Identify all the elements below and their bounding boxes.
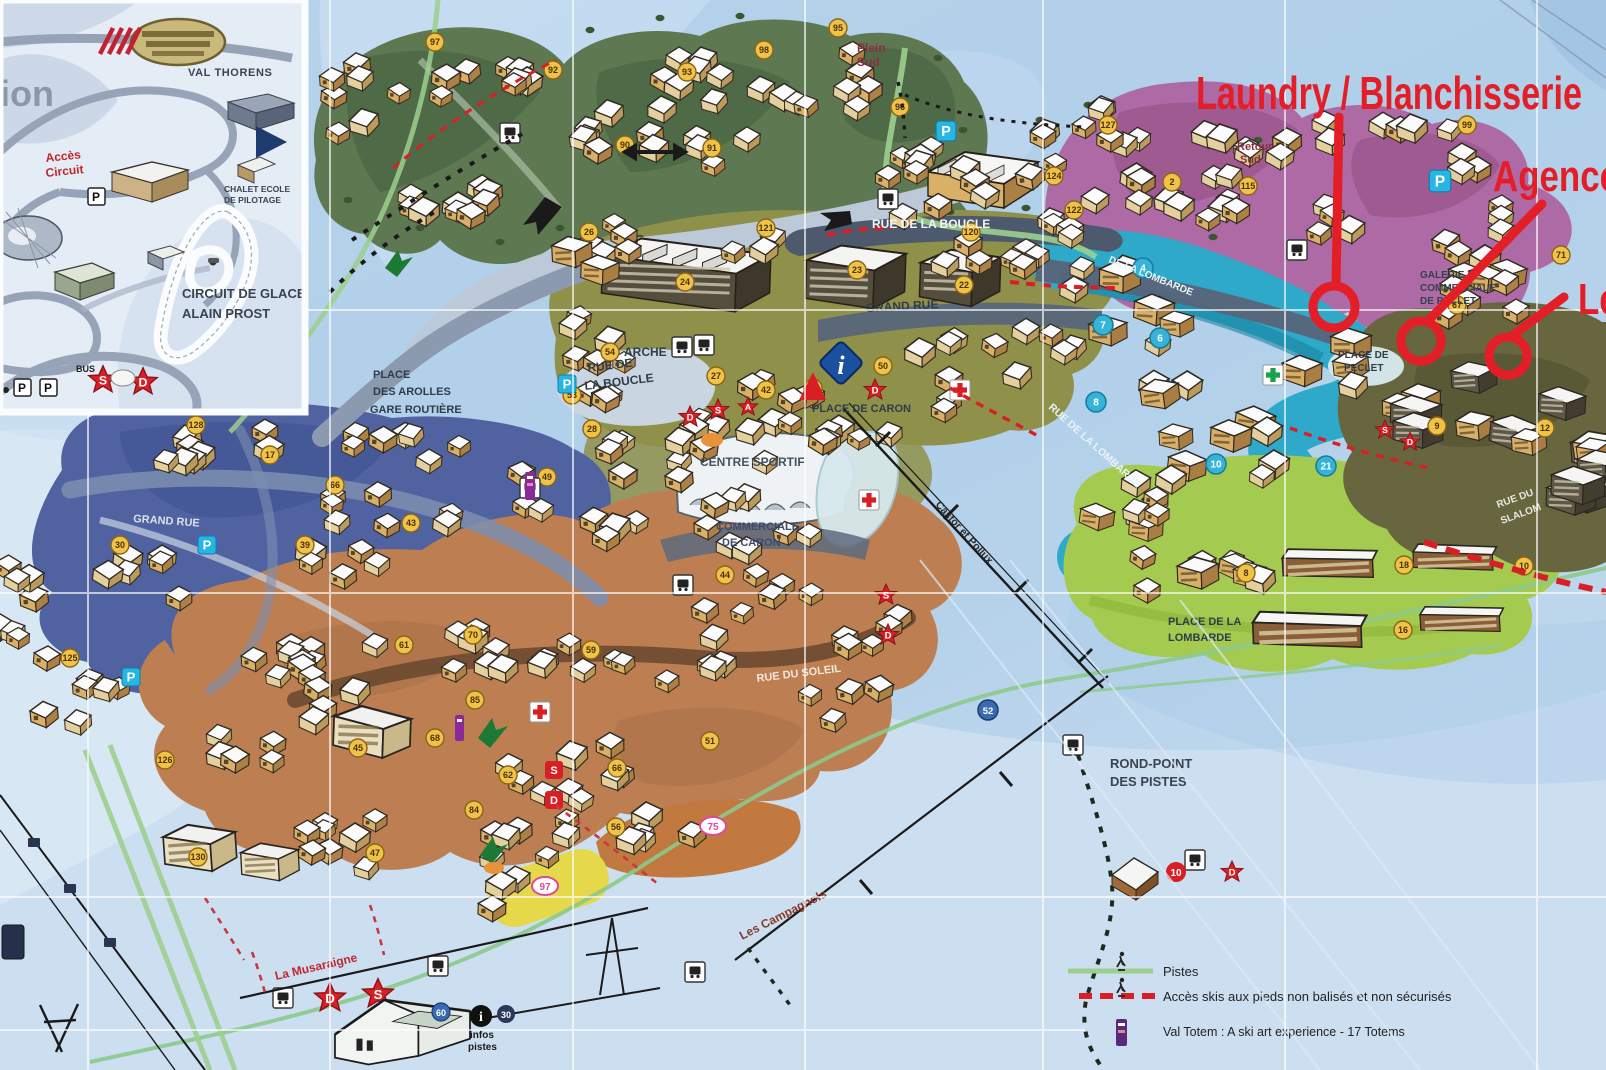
svg-text:D: D bbox=[687, 413, 694, 424]
svg-text:S: S bbox=[550, 765, 557, 777]
svg-text:CIRCUIT DE GLACE: CIRCUIT DE GLACE bbox=[182, 286, 306, 301]
svg-text:61: 61 bbox=[399, 640, 409, 650]
svg-text:52: 52 bbox=[983, 706, 994, 717]
svg-text:DE PILOTAGE: DE PILOTAGE bbox=[224, 195, 281, 205]
svg-text:126: 126 bbox=[157, 755, 172, 765]
svg-text:17: 17 bbox=[265, 450, 275, 460]
svg-text:85: 85 bbox=[470, 695, 480, 705]
svg-text:8: 8 bbox=[1093, 398, 1099, 409]
svg-text:P: P bbox=[941, 124, 951, 140]
svg-text:2: 2 bbox=[1169, 177, 1174, 187]
svg-text:P: P bbox=[127, 670, 136, 685]
svg-text:22: 22 bbox=[959, 280, 969, 290]
svg-text:75: 75 bbox=[707, 822, 719, 833]
svg-text:59: 59 bbox=[586, 645, 596, 655]
svg-text:84: 84 bbox=[469, 805, 479, 815]
svg-text:97: 97 bbox=[539, 882, 551, 893]
svg-text:ALAIN PROST: ALAIN PROST bbox=[182, 306, 270, 321]
svg-text:125: 125 bbox=[62, 653, 77, 663]
svg-text:122: 122 bbox=[1066, 205, 1081, 215]
svg-text:43: 43 bbox=[406, 518, 416, 528]
svg-text:A: A bbox=[745, 402, 751, 412]
svg-text:45: 45 bbox=[353, 743, 363, 753]
svg-text:Plein: Plein bbox=[857, 41, 886, 55]
svg-text:115: 115 bbox=[1241, 181, 1256, 191]
svg-text:24: 24 bbox=[680, 277, 690, 287]
svg-text:P: P bbox=[44, 381, 52, 395]
svg-text:66: 66 bbox=[330, 480, 340, 490]
svg-text:D: D bbox=[1229, 868, 1236, 879]
svg-text:P: P bbox=[563, 377, 572, 392]
svg-text:S: S bbox=[1382, 425, 1388, 435]
svg-text:47: 47 bbox=[370, 848, 380, 858]
svg-text:P: P bbox=[18, 381, 26, 395]
svg-text:60: 60 bbox=[436, 1008, 446, 1018]
svg-text:26: 26 bbox=[584, 227, 594, 237]
svg-text:P: P bbox=[1435, 173, 1445, 190]
svg-text:PLACE DE LA: PLACE DE LA bbox=[1168, 616, 1241, 628]
svg-text:12: 12 bbox=[1540, 423, 1550, 433]
svg-text:i: i bbox=[479, 1010, 483, 1025]
svg-text:D: D bbox=[885, 631, 892, 642]
svg-text:8: 8 bbox=[1243, 568, 1248, 578]
svg-text:CHALET ECOLE: CHALET ECOLE bbox=[224, 184, 290, 194]
svg-text:28: 28 bbox=[587, 424, 597, 434]
svg-text:70: 70 bbox=[468, 630, 478, 640]
svg-text:PLACE DE CARON: PLACE DE CARON bbox=[812, 403, 911, 415]
svg-text:Pistes: Pistes bbox=[1163, 964, 1199, 979]
svg-text:D: D bbox=[1407, 437, 1413, 447]
svg-text:GARE ROUTIÈRE: GARE ROUTIÈRE bbox=[370, 403, 462, 416]
svg-text:D: D bbox=[139, 376, 148, 390]
svg-text:Les: Les bbox=[1578, 275, 1606, 324]
svg-text:121: 121 bbox=[758, 223, 773, 233]
svg-text:49: 49 bbox=[542, 472, 552, 482]
svg-text:91: 91 bbox=[707, 143, 717, 153]
svg-text:39: 39 bbox=[300, 540, 310, 550]
svg-text:i: i bbox=[837, 351, 845, 380]
svg-text:66: 66 bbox=[612, 763, 622, 773]
svg-text:Sud: Sud bbox=[1240, 154, 1261, 166]
svg-text:Accès skis aux pieds non balis: Accès skis aux pieds non balisés et non … bbox=[1163, 989, 1452, 1004]
svg-text:CENTRE SPORTIF: CENTRE SPORTIF bbox=[700, 455, 805, 469]
svg-text:Agence: Agence bbox=[1493, 152, 1606, 201]
svg-text:68: 68 bbox=[430, 733, 440, 743]
svg-text:D: D bbox=[872, 386, 879, 397]
svg-text:54: 54 bbox=[605, 347, 615, 357]
svg-text:30: 30 bbox=[501, 1010, 511, 1020]
svg-text:COMMERCIALE: COMMERCIALE bbox=[716, 521, 799, 533]
svg-text:Laundry / Blanchisserie: Laundry / Blanchisserie bbox=[1196, 67, 1582, 119]
svg-text:51: 51 bbox=[705, 736, 715, 746]
svg-text:56: 56 bbox=[611, 822, 621, 832]
svg-text:ROND-POINT: ROND-POINT bbox=[1110, 756, 1192, 771]
svg-text:62: 62 bbox=[503, 770, 513, 780]
svg-text:ARCHE: ARCHE bbox=[624, 345, 667, 359]
svg-text:DE CARON: DE CARON bbox=[722, 537, 781, 549]
svg-text:S: S bbox=[99, 374, 107, 388]
svg-text:97: 97 bbox=[430, 37, 440, 47]
svg-text:128: 128 bbox=[188, 420, 203, 430]
svg-text:130: 130 bbox=[190, 852, 205, 862]
svg-text:16: 16 bbox=[1398, 625, 1408, 635]
svg-text:Retour: Retour bbox=[1237, 141, 1273, 153]
svg-text:127: 127 bbox=[1100, 120, 1115, 130]
svg-text:Val Totem : A ski art experien: Val Totem : A ski art experience - 17 To… bbox=[1163, 1025, 1405, 1039]
svg-text:92: 92 bbox=[548, 65, 558, 75]
svg-text:42: 42 bbox=[761, 385, 771, 395]
svg-text:18: 18 bbox=[1399, 560, 1409, 570]
svg-text:71: 71 bbox=[1556, 250, 1566, 260]
svg-text:Sud: Sud bbox=[857, 55, 880, 69]
svg-text:9: 9 bbox=[1434, 421, 1439, 431]
svg-text:44: 44 bbox=[720, 570, 730, 580]
svg-text:S: S bbox=[715, 406, 721, 417]
svg-text:6: 6 bbox=[1157, 334, 1163, 345]
svg-text:124: 124 bbox=[1046, 171, 1061, 181]
svg-text:PECLET: PECLET bbox=[1344, 363, 1383, 374]
svg-text:50: 50 bbox=[878, 361, 888, 371]
svg-text:S: S bbox=[374, 987, 383, 1002]
svg-text:LOMBARDE: LOMBARDE bbox=[1168, 632, 1232, 644]
svg-text:93: 93 bbox=[682, 67, 692, 77]
svg-text:VAL THORENS: VAL THORENS bbox=[188, 67, 272, 79]
svg-text:P: P bbox=[92, 190, 100, 204]
svg-text:21: 21 bbox=[1320, 462, 1332, 473]
svg-text:30: 30 bbox=[115, 540, 125, 550]
svg-text:27: 27 bbox=[711, 371, 721, 381]
svg-text:PLACE DE: PLACE DE bbox=[1338, 350, 1389, 361]
svg-text:PLACE: PLACE bbox=[373, 369, 410, 381]
svg-text:DES AROLLES: DES AROLLES bbox=[373, 386, 451, 398]
svg-text:10: 10 bbox=[1210, 460, 1222, 471]
svg-text:23: 23 bbox=[852, 265, 862, 275]
svg-text:GALERIE: GALERIE bbox=[1420, 270, 1465, 281]
svg-text:BUS: BUS bbox=[76, 364, 95, 374]
svg-text:ion: ion bbox=[0, 73, 54, 114]
svg-text:98: 98 bbox=[759, 45, 769, 55]
svg-text:DES PISTES: DES PISTES bbox=[1110, 774, 1187, 789]
svg-text:99: 99 bbox=[1462, 120, 1472, 130]
svg-text:95: 95 bbox=[833, 23, 843, 33]
svg-text:P: P bbox=[203, 538, 212, 553]
svg-text:RUE DE LA BOUCLE: RUE DE LA BOUCLE bbox=[872, 217, 990, 231]
svg-text:infos: infos bbox=[470, 1030, 494, 1041]
svg-text:7: 7 bbox=[1100, 321, 1106, 332]
svg-text:10: 10 bbox=[1170, 868, 1182, 879]
svg-text:pistes: pistes bbox=[468, 1042, 497, 1053]
